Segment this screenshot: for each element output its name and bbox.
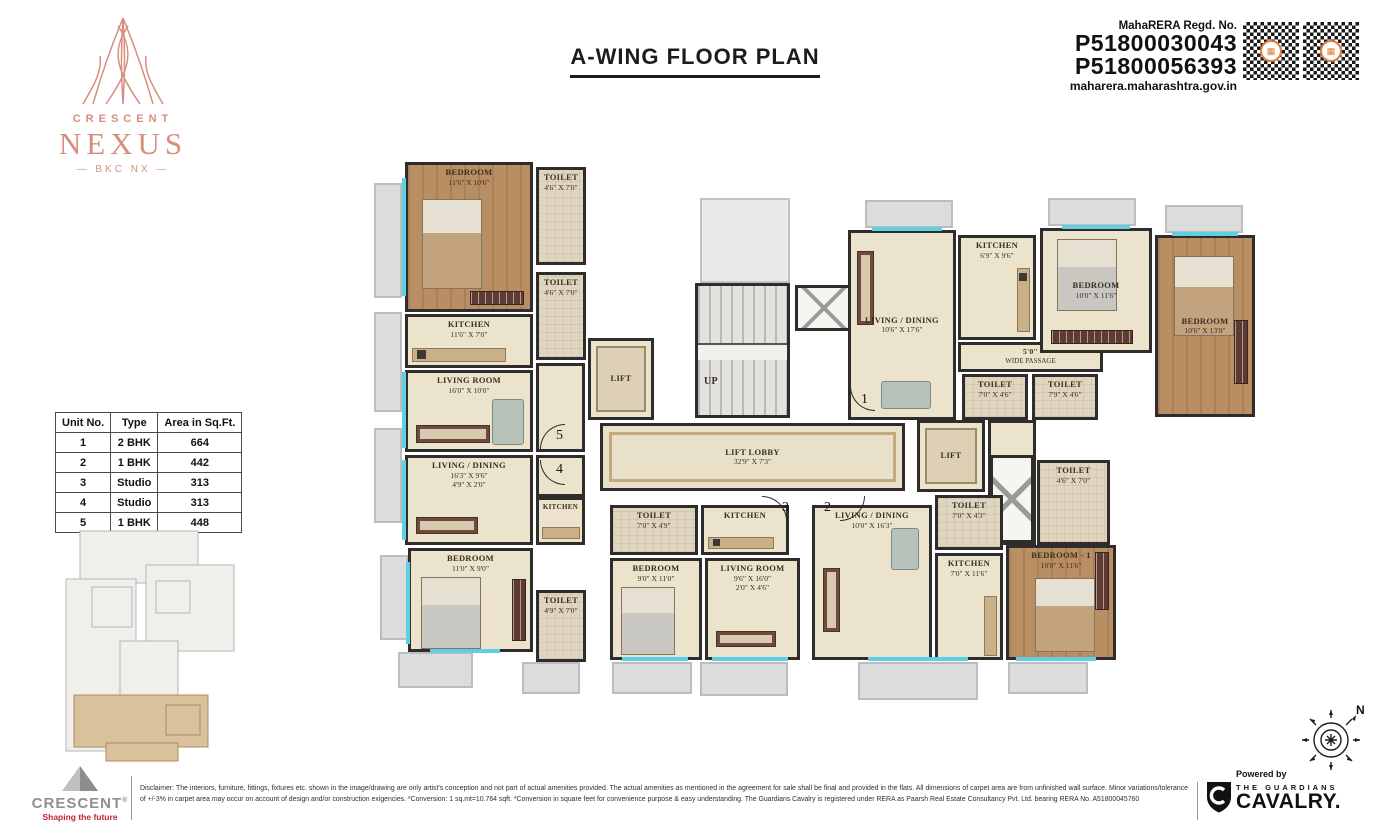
unit-marker-1: 1 — [861, 392, 868, 408]
room-kitchen-unit2: KITCHEN 7'0" X 11'6" — [935, 553, 1003, 660]
qr-medallion-icon: ▦ — [1260, 40, 1282, 62]
col-type: Type — [111, 413, 158, 433]
room-toilet-unit5-b: TOILET 4'6" X 7'0" — [536, 272, 586, 360]
room-bedroom-unit5: BEDROOM 11'6" X 10'6" — [405, 162, 533, 312]
qr-code-icon: ▦ — [1243, 22, 1299, 80]
unit-marker-4: 4 — [556, 462, 563, 478]
cell: 4 — [56, 493, 111, 513]
window — [402, 178, 406, 296]
room-living-unit5: LIVING ROOM 16'0" X 10'0" — [405, 370, 533, 452]
compass-icon: N — [1298, 700, 1372, 777]
room-living-unit4: LIVING / DINING 16'3" X 9'6" 4'9" X 2'0" — [405, 455, 533, 545]
deck — [374, 183, 402, 298]
cell: 313 — [158, 473, 242, 493]
duct — [795, 285, 853, 331]
deck — [1008, 662, 1088, 694]
window — [406, 562, 410, 644]
deck — [380, 555, 408, 640]
room-kitchen-unit1: KITCHEN 6'9" X 9'6" — [958, 235, 1036, 340]
deck — [374, 428, 402, 523]
service-shaft — [700, 198, 790, 283]
shield-icon — [1206, 781, 1232, 813]
room-kitchen-unit5: KITCHEN 11'6" X 7'0" — [405, 314, 533, 368]
window — [622, 657, 688, 661]
brand-bkc: — BKC NX — — [28, 164, 218, 175]
table-row: 12 BHK664 — [56, 433, 242, 453]
qr-code-icon: ▦ — [1303, 22, 1359, 80]
rera-number-1: P51800030043 — [990, 32, 1237, 55]
lift-right: LIFT — [917, 420, 985, 492]
col-unit-no: Unit No. — [56, 413, 111, 433]
deck — [374, 312, 402, 412]
table-row: 21 BHK442 — [56, 453, 242, 473]
deck — [858, 662, 978, 700]
footer-divider — [131, 776, 132, 820]
room-bedroom-unit4: BEDROOM 11'0" X 9'0" — [408, 548, 533, 652]
footer-divider — [1197, 782, 1198, 820]
room-kitchen-unit4: KITCHEN — [536, 497, 585, 545]
rera-website: maharera.maharashtra.gov.in — [990, 79, 1237, 93]
room-toilet-unit4: TOILET 4'9" X 7'0" — [536, 590, 586, 662]
cell: 2 BHK — [111, 433, 158, 453]
room-living-unit3: LIVING ROOM 9'6" X 16'0" 2'0" X 4'6" — [705, 558, 800, 660]
cell: 2 — [56, 453, 111, 473]
deck — [612, 662, 692, 694]
floor-plan-page: CRESCENT NEXUS — BKC NX — A-WING FLOOR P… — [0, 0, 1389, 833]
registered-mark: ® — [122, 797, 128, 804]
col-area: Area in Sq.Ft. — [158, 413, 242, 433]
window — [1172, 232, 1238, 236]
unit-marker-5: 5 — [556, 428, 563, 444]
window — [868, 657, 968, 661]
pyramid-icon — [62, 766, 98, 791]
deck — [522, 662, 580, 694]
powered-by-block: Powered by THE GUARDIANS CAVALRY. — [1206, 769, 1376, 813]
footer-crescent-logo: CRESCENT® Shaping the future — [28, 766, 132, 822]
rera-number-2: P51800056393 — [990, 55, 1237, 78]
cell: Studio — [111, 473, 158, 493]
cavalry-label: CAVALRY. — [1236, 792, 1341, 812]
room-toilet-unit1-a: TOILET 7'0" X 4'6" — [962, 374, 1028, 420]
window — [712, 657, 788, 661]
table-row: 3Studio313 — [56, 473, 242, 493]
staircase: UP — [695, 283, 790, 418]
room-living-unit2: LIVING / DINING 10'0" X 16'3" — [812, 505, 932, 660]
crest-icon — [58, 14, 188, 106]
disclaimer-text: Disclaimer: The interiors, furniture, fi… — [140, 783, 1188, 817]
room-toilet-unit2: TOILET 7'0" X 4'3" — [935, 495, 1003, 550]
deck — [398, 652, 473, 688]
window — [402, 460, 406, 540]
brand-logo: CRESCENT NEXUS — BKC NX — — [28, 14, 218, 175]
window — [402, 372, 406, 448]
room-toilet-unit3: TOILET 7'0" X 4'9" — [610, 505, 698, 555]
cell: 1 BHK — [111, 453, 158, 473]
cell: 1 — [56, 433, 111, 453]
room-toilet-unit1-b: TOILET 7'9" X 4'6" — [1032, 374, 1098, 420]
deck — [700, 662, 788, 696]
powered-by-label: Powered by — [1236, 769, 1376, 779]
window — [872, 227, 942, 231]
unit-marker-2: 2 — [824, 500, 831, 516]
cell: Studio — [111, 493, 158, 513]
brand-crescent: CRESCENT — [28, 113, 218, 125]
rera-block: MahaRERA Regd. No. P51800030043 P5180005… — [990, 20, 1237, 93]
cell: 313 — [158, 493, 242, 513]
compass-north-label: N — [1356, 703, 1365, 717]
page-title: A-WING FLOOR PLAN — [570, 44, 819, 78]
table-header-row: Unit No. Type Area in Sq.Ft. — [56, 413, 242, 433]
cell: 3 — [56, 473, 111, 493]
deck — [1048, 198, 1136, 226]
footer-tagline: Shaping the future — [28, 812, 132, 822]
room-toilet-unit1-c: TOILET 4'6" X 7'0" — [1037, 460, 1110, 545]
cell: 442 — [158, 453, 242, 473]
brand-nexus: NEXUS — [28, 126, 218, 162]
room-bedroom-unit1-b: BEDROOM 10'6" X 13'0" — [1155, 235, 1255, 417]
room-bedroom-unit1-a: BEDROOM 10'0" X 11'6" — [1040, 228, 1152, 353]
room-bedroom1-unit1: BEDROOM - 1 10'0" X 11'6" — [1006, 545, 1116, 660]
table-row: 4Studio313 — [56, 493, 242, 513]
deck — [865, 200, 953, 228]
cell: 664 — [158, 433, 242, 453]
window — [1062, 225, 1130, 229]
room-toilet-unit5-a: TOILET 4'6" X 7'0" — [536, 167, 586, 265]
unit-area-table: Unit No. Type Area in Sq.Ft. 12 BHK664 2… — [55, 412, 242, 533]
key-plan — [48, 523, 243, 768]
unit-marker-3: 3 — [782, 500, 789, 516]
deck — [1165, 205, 1243, 233]
window — [1016, 657, 1096, 661]
footer-crescent-name: CRESCENT — [32, 795, 123, 812]
lift-left: LIFT — [588, 338, 654, 420]
room-bedroom-unit3: BEDROOM 9'0" X 11'0" — [610, 558, 702, 660]
lift-lobby: LIFT LOBBY 32'9" X 7'3" — [600, 423, 905, 491]
qr-medallion-icon: ▦ — [1320, 40, 1342, 62]
window — [430, 649, 500, 653]
